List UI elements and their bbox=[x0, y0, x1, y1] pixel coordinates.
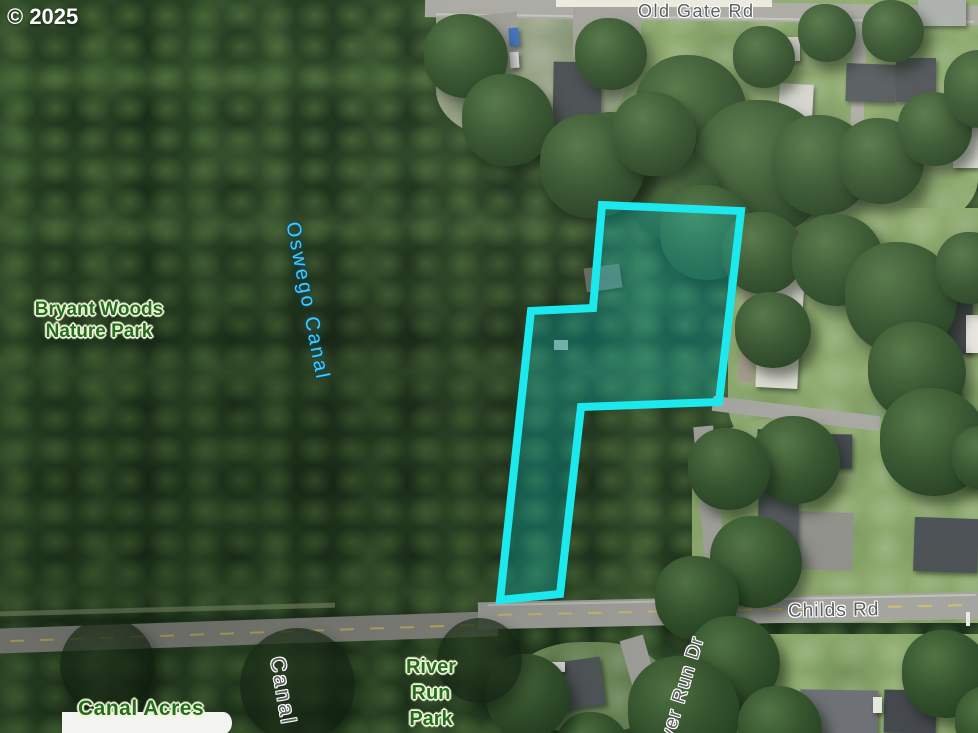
label-line: River bbox=[396, 654, 466, 680]
label-line: Park bbox=[396, 706, 466, 732]
label-canal-acres: Canal Acres bbox=[78, 697, 204, 720]
label-river-run-park: River Run Park bbox=[396, 654, 466, 732]
parcel-boundary-layer bbox=[0, 0, 978, 733]
label-old-gate-rd: Old Gate Rd bbox=[638, 2, 755, 22]
label-childs-rd: Childs Rd bbox=[788, 600, 880, 622]
copyright-watermark: © 2025 bbox=[7, 5, 78, 29]
aerial-map: © 2025 Old Gate Rd Bryant Woods Nature P… bbox=[0, 0, 978, 733]
label-line: Run bbox=[396, 680, 466, 706]
label-bryant-woods-nature-park: Bryant Woods Nature Park bbox=[14, 299, 184, 343]
label-line: Bryant Woods bbox=[14, 299, 184, 321]
label-line: Nature Park bbox=[14, 321, 184, 343]
parcel-boundary bbox=[500, 205, 741, 600]
